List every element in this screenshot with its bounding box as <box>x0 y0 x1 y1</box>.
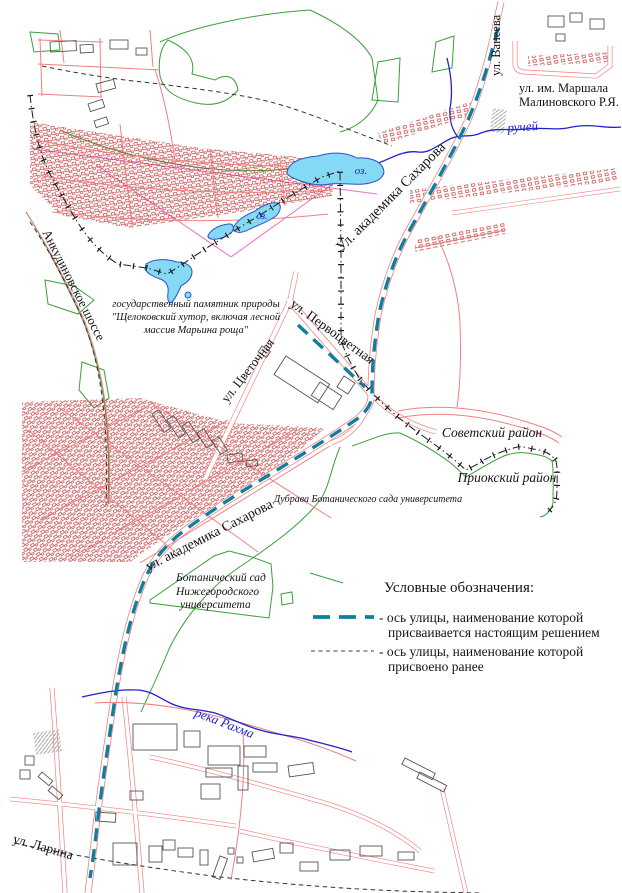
label-vaneeva: ул. Ванеева <box>489 14 503 76</box>
legend-new-axis-label-line2: присваивается настоящим решением <box>388 625 600 640</box>
label-sovetsky-district: Советский район <box>442 425 542 440</box>
label-oz-mid: оз. <box>256 211 267 222</box>
vegetation-lines <box>26 10 553 712</box>
label-malinovsky-line1: ул. им. Маршала <box>519 81 608 95</box>
label-prioksky-district: Приокский район <box>457 470 557 485</box>
label-larina: ул. Ларина <box>11 831 75 863</box>
legend-old-axis-label-line2: присвоено ранее <box>388 659 484 674</box>
map-canvas: ул. Ванеева ул. им. Маршала Малиновского… <box>0 0 622 893</box>
label-monument-line3: массив Марьина роща" <box>143 325 249 336</box>
label-botsad-line3: университета <box>179 599 251 611</box>
label-dubrava: Дубрава Ботанического сада университета <box>273 494 462 505</box>
legend-title: Условные обозначения: <box>384 580 534 596</box>
legend-new-axis-label-line1: - ось улицы, наименование которой <box>379 610 583 625</box>
label-botsad-line2: Нижегородского <box>175 586 259 598</box>
label-monument-line2: "Щелоковский хутор, включая лесной <box>112 312 281 323</box>
label-botsad-line1: Ботанический сад <box>175 571 266 584</box>
label-oz-big: оз. <box>355 165 367 177</box>
label-rakhma: река Рахма <box>192 704 257 741</box>
map-page: ул. Ванеева ул. им. Маршала Малиновского… <box>0 0 622 893</box>
legend-old-axis-label-line1: - ось улицы, наименование которой <box>379 644 583 659</box>
label-monument-line1: государственный памятник природы <box>112 299 279 310</box>
label-ankudinovskoe: Анкудиновское шоссе <box>39 227 108 343</box>
label-malinovsky-line2: Малиновского Р.Я. <box>519 95 619 109</box>
legend: Условные обозначения: - ось улицы, наиме… <box>311 580 600 674</box>
label-ruchey: ручей <box>506 118 539 135</box>
